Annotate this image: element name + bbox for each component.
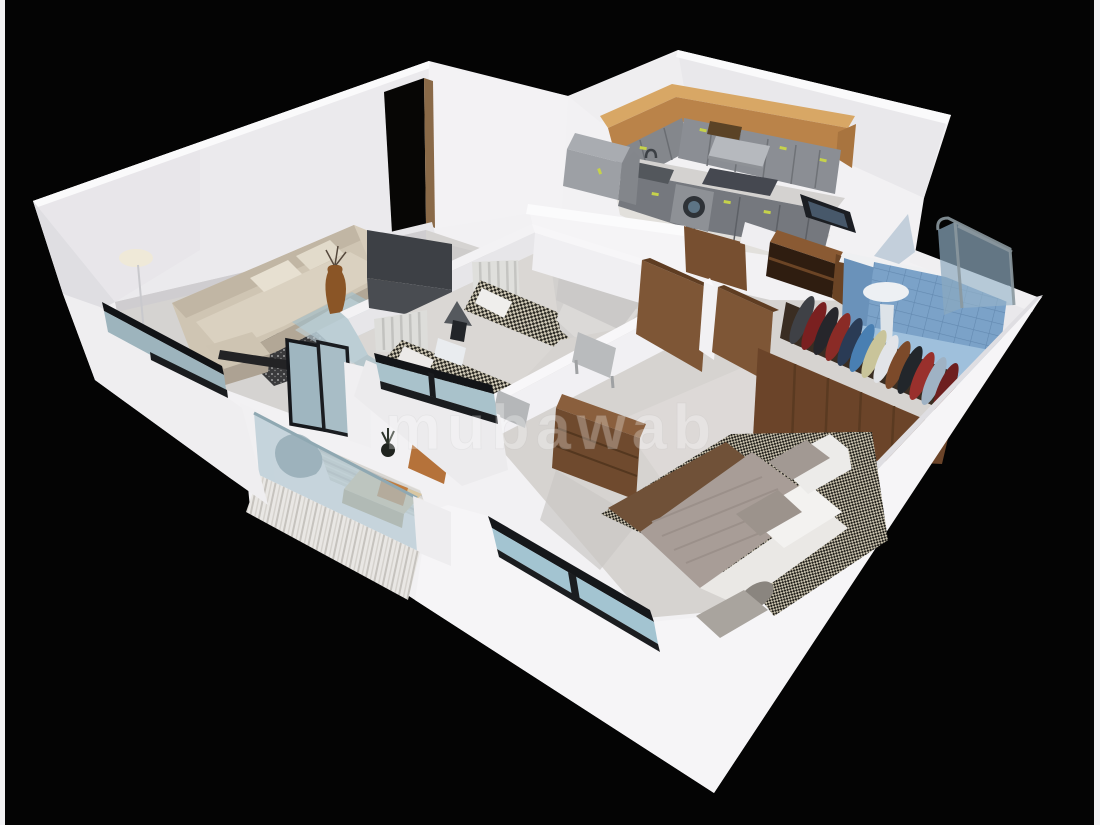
svg-text:mubawab: mubawab bbox=[385, 393, 718, 463]
